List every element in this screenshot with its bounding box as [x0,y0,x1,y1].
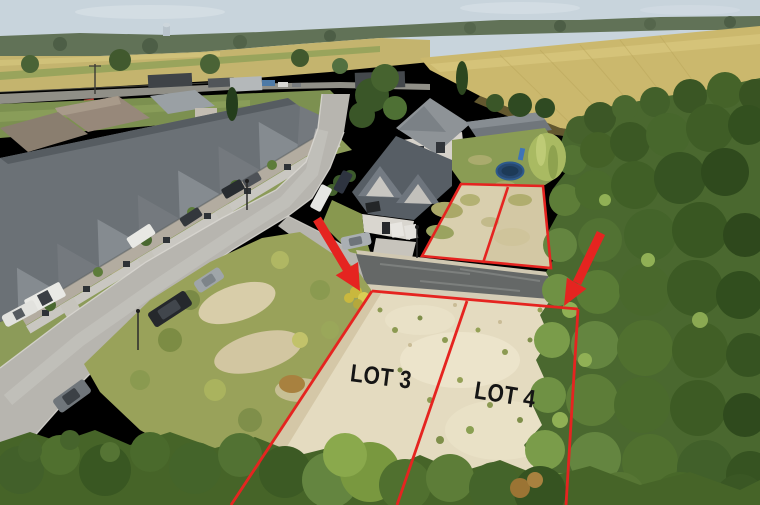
water-tower [163,23,171,36]
willow-tree [528,133,566,181]
aerial-photo-stage: LOT 3 LOT 4 [0,0,760,505]
aerial-photo [0,0,760,505]
trampoline [497,163,524,180]
front-door [382,222,390,234]
rust-shrub [279,375,305,393]
